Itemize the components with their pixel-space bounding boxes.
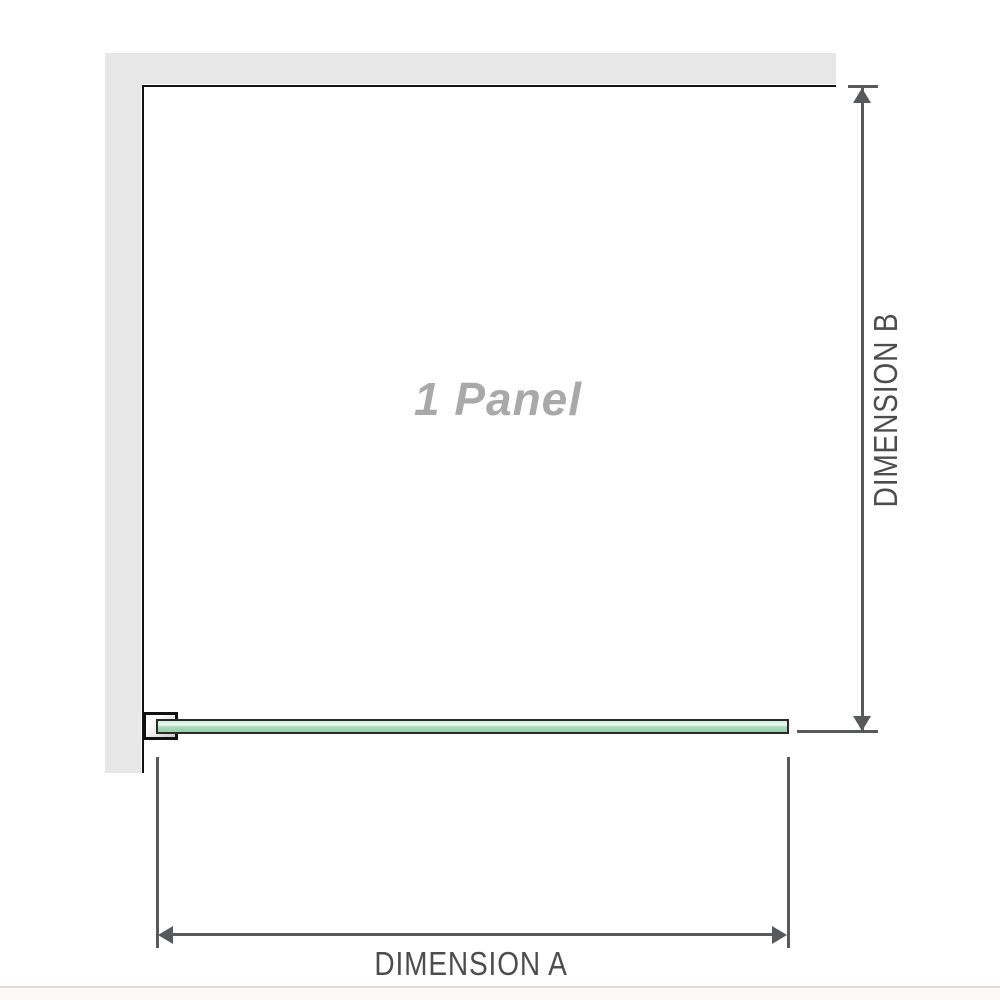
panel-label: 1 Panel [414,372,582,426]
dim-a-label: DIMENSION A [374,945,567,983]
dim-b-arrow-up-icon [853,88,871,103]
glass-panel-bar [156,719,789,734]
wall-left-bar [105,53,141,773]
dim-b-arrow-down-icon [853,716,871,731]
dim-a-extension-right [787,757,790,948]
panel-outline [142,85,836,773]
diagram-canvas: 1 Panel DIMENSION B DIMENSION A [0,0,1000,1000]
dim-b-line [861,88,864,731]
dim-b-label: DIMENSION B [867,313,905,508]
dim-a-line [162,933,784,936]
wall-top-bar [105,53,836,84]
dim-a-arrow-right-icon [772,926,787,944]
dim-a-arrow-left-icon [158,926,173,944]
below-divider-area [0,988,1000,1000]
dim-a-extension-left [156,757,159,948]
